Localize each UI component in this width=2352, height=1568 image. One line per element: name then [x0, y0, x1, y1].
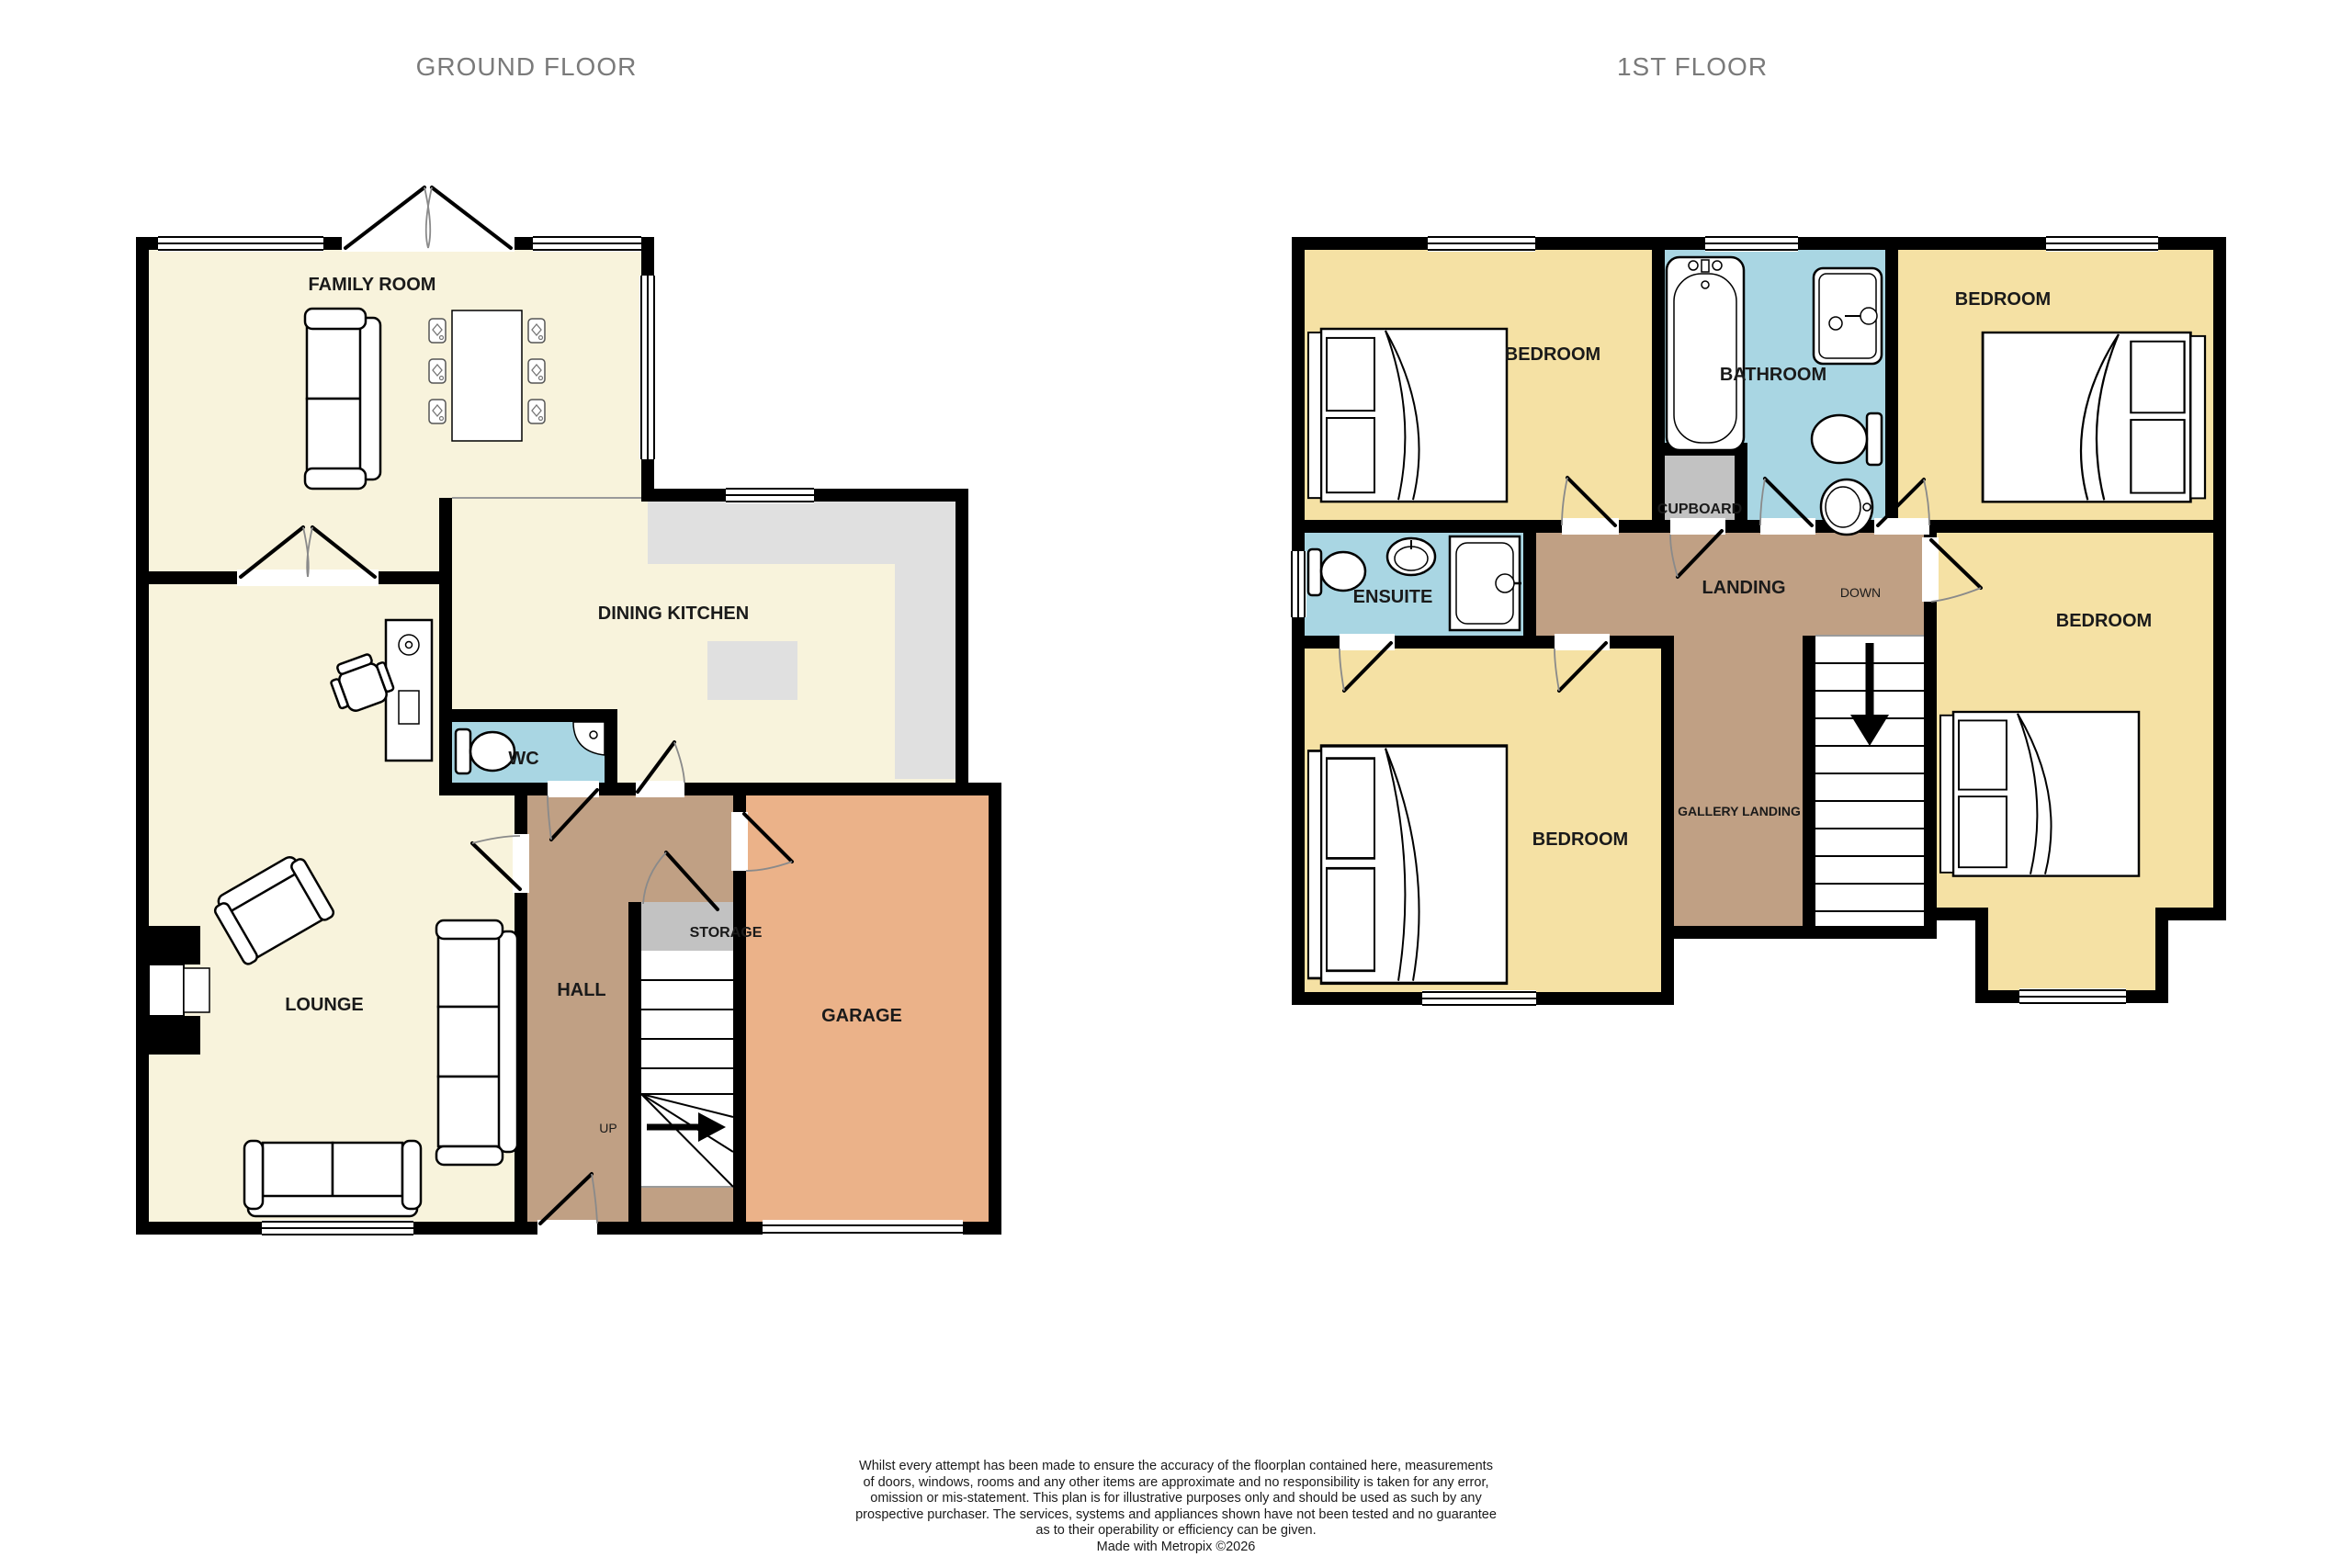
disclaimer-line: prospective purchaser. The services, sys… — [0, 1507, 2352, 1524]
ensuite-shower — [1450, 536, 1521, 630]
family-room-window-right — [533, 235, 641, 252]
chimney-breast-top — [149, 926, 200, 964]
stairs-down-label: DOWN — [1840, 585, 1881, 600]
garage-door-opening — [763, 1220, 963, 1236]
patio-french-doors — [342, 187, 514, 252]
lounge-sofa-horizontal — [244, 1141, 421, 1216]
family-room-side-window — [639, 276, 656, 459]
ground-floor-title: GROUND FLOOR — [416, 52, 638, 81]
garage-label: GARAGE — [821, 1006, 902, 1026]
ensuite-sink — [1387, 538, 1435, 575]
ground-floor-plan: GROUND FLOOR — [136, 52, 1001, 1236]
fireplace-recess — [149, 964, 184, 1016]
bedroom1-window — [1428, 235, 1535, 252]
disclaimer-line: of doors, windows, rooms and any other i… — [0, 1475, 2352, 1492]
first-floor-title: 1ST FLOOR — [1617, 52, 1768, 81]
bathroom-label: BATHROOM — [1720, 365, 1826, 385]
dining-kitchen-label: DINING KITCHEN — [598, 604, 749, 624]
kitchen-counter-top — [648, 502, 955, 564]
floorplan-page: { "colors": { "wall": "#000000", "ground… — [0, 0, 2352, 1568]
cupboard-label: CUPBOARD — [1657, 502, 1742, 517]
bay-window — [2019, 988, 2126, 1005]
floorplan-canvas: GROUND FLOOR — [0, 0, 2352, 1568]
ensuite-label: ENSUITE — [1353, 587, 1433, 607]
landing-label: LANDING — [1702, 578, 1785, 598]
bathroom-pedestal-sink — [1821, 479, 1872, 535]
gallery-landing-label: GALLERY LANDING — [1678, 804, 1801, 818]
hearth — [184, 968, 209, 1012]
wc-toilet — [456, 729, 514, 773]
bed-top-right — [1983, 333, 2205, 502]
storage-label: STORAGE — [690, 925, 763, 941]
metropix-credit: Made with Metropix ©2026 — [0, 1540, 2352, 1556]
bedroom1-label: BEDROOM — [1505, 344, 1600, 365]
bedroom2-window — [2046, 235, 2158, 252]
family-room-sofa — [305, 309, 380, 489]
bed-bottom-left — [1308, 746, 1507, 983]
bedroom3-window — [1422, 990, 1536, 1007]
disclaimer-line: omission or mis-statement. This plan is … — [0, 1491, 2352, 1507]
stairs-up-label: UP — [599, 1121, 616, 1135]
disclaimer-line: as to their operability or efficiency ca… — [0, 1523, 2352, 1540]
lounge-window — [262, 1220, 413, 1236]
hall-label: HALL — [557, 980, 605, 1000]
lounge-sofa-vertical — [436, 920, 517, 1165]
family-room-label: FAMILY ROOM — [309, 275, 436, 295]
bed-top-left — [1308, 329, 1507, 502]
family-room-window-left — [158, 235, 323, 252]
lounge-label: LOUNGE — [285, 995, 364, 1015]
bed-right — [1940, 712, 2139, 876]
bedroom3-label: BEDROOM — [1532, 829, 1628, 850]
bathtub — [1667, 257, 1744, 450]
kitchen-counter-right — [895, 564, 955, 779]
ensuite-window — [1290, 551, 1306, 617]
gallery-landing-floor — [1674, 636, 1803, 932]
bathroom-sink — [1814, 268, 1882, 364]
first-floor-plan: 1ST FLOOR — [1290, 52, 2226, 1007]
disclaimer-line: Whilst every attempt has been made to en… — [0, 1459, 2352, 1475]
kitchen-island — [707, 641, 797, 700]
bedroom2-label: BEDROOM — [1955, 289, 2051, 310]
kitchen-window — [726, 487, 814, 503]
bathroom-window — [1705, 235, 1798, 252]
wc-label: WC — [508, 749, 538, 769]
bedroom4-label: BEDROOM — [2056, 611, 2152, 631]
bathroom-toilet — [1812, 413, 1882, 465]
disclaimer-block: Whilst every attempt has been made to en… — [0, 1459, 2352, 1555]
chimney-breast-bottom — [149, 1016, 200, 1055]
